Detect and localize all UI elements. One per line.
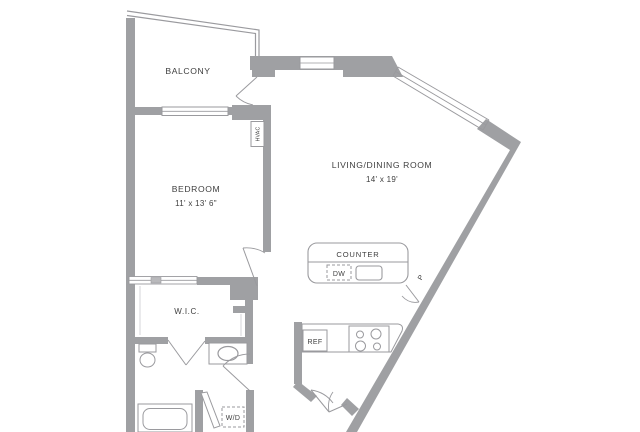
bathroom-door-leaf — [223, 366, 250, 391]
bedroom-label: BEDROOM — [172, 184, 221, 194]
bathroom: W/D — [138, 343, 250, 432]
balcony — [127, 11, 259, 105]
walls — [126, 18, 521, 432]
washer-dryer-label: W/D — [226, 415, 241, 422]
pantry-door-leaf — [406, 285, 419, 302]
toilet — [139, 344, 156, 367]
balcony-door-leaf — [236, 77, 257, 96]
toilet-tank — [139, 344, 156, 352]
kitchen-sink — [356, 266, 382, 280]
wall-bedroom-top-left — [126, 107, 162, 115]
hvac-label: HVAC — [256, 127, 262, 142]
wall-wic-step — [233, 306, 251, 313]
counter-label: COUNTER — [336, 250, 379, 259]
wall-left — [126, 18, 135, 432]
burner-2 — [371, 329, 381, 339]
balcony-door-arc — [236, 96, 253, 105]
burner-1 — [357, 331, 364, 338]
toilet-bowl — [140, 353, 155, 367]
wall-bedroom-door-block — [230, 284, 258, 300]
wall-kitchen-west — [294, 322, 302, 384]
dishwasher-label: DW — [333, 271, 345, 278]
floorplan-page: W/D COUNTER DW P REF — [0, 0, 640, 432]
wall-bedroom-corner-block — [232, 105, 271, 120]
wic-doors — [168, 340, 205, 365]
bedroom-dimensions: 11' x 13' 6" — [175, 199, 217, 208]
wall-wic-top — [197, 277, 258, 285]
living-window — [300, 57, 334, 69]
wall-balcony-right — [252, 56, 275, 77]
floorplan-svg: W/D COUNTER DW P REF — [0, 0, 640, 432]
living-dining-dimensions: 14' x 19' — [366, 175, 398, 184]
balcony-railing-inner — [127, 16, 256, 57]
stove — [349, 326, 389, 352]
pantry-label: P — [417, 274, 426, 282]
washer-dryer-box: W/D — [222, 407, 244, 427]
wic-label: W.I.C. — [174, 307, 199, 316]
entry-doors — [311, 390, 347, 412]
burner-4 — [374, 343, 381, 350]
balcony-label: BALCONY — [165, 66, 210, 76]
windows — [162, 57, 489, 130]
diagonal-window — [393, 67, 489, 130]
wall-entry-stub-1 — [293, 381, 317, 402]
wall-entry-stub-2 — [341, 398, 359, 416]
refrigerator-box: REF — [303, 330, 327, 351]
wall-bath-top-left — [126, 337, 168, 344]
wd-door-leaf — [201, 392, 220, 428]
burner-3 — [356, 341, 366, 351]
entry-door-leaf-1 — [311, 390, 329, 412]
living-dining-label: LIVING/DINING ROOM — [332, 160, 433, 170]
counter-island: COUNTER DW — [308, 243, 408, 283]
hvac-box: HVAC — [251, 122, 264, 147]
closet-rod-hatch — [151, 278, 161, 284]
bathtub — [138, 404, 192, 432]
bedroom-door-arc — [243, 248, 265, 253]
closet-shelf — [129, 277, 197, 285]
wall-wd-right — [246, 390, 254, 432]
refrigerator-label: REF — [308, 339, 323, 346]
bedroom-window — [162, 107, 228, 116]
